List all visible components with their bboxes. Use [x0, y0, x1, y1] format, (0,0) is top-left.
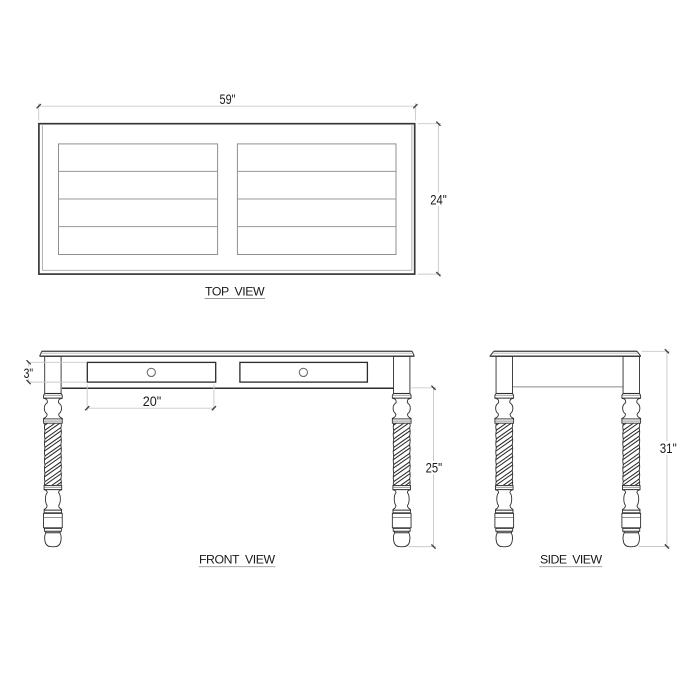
- svg-text:59": 59": [220, 91, 236, 107]
- svg-text:25": 25": [426, 460, 443, 476]
- svg-text:20": 20": [143, 393, 162, 409]
- svg-text:31": 31": [660, 440, 677, 456]
- svg-text:FRONT VIEW: FRONT VIEW: [199, 552, 275, 566]
- svg-text:24": 24": [430, 192, 447, 208]
- svg-text:SIDE VIEW: SIDE VIEW: [540, 552, 602, 566]
- svg-text:3": 3": [24, 365, 34, 381]
- svg-text:TOP VIEW: TOP VIEW: [205, 285, 265, 299]
